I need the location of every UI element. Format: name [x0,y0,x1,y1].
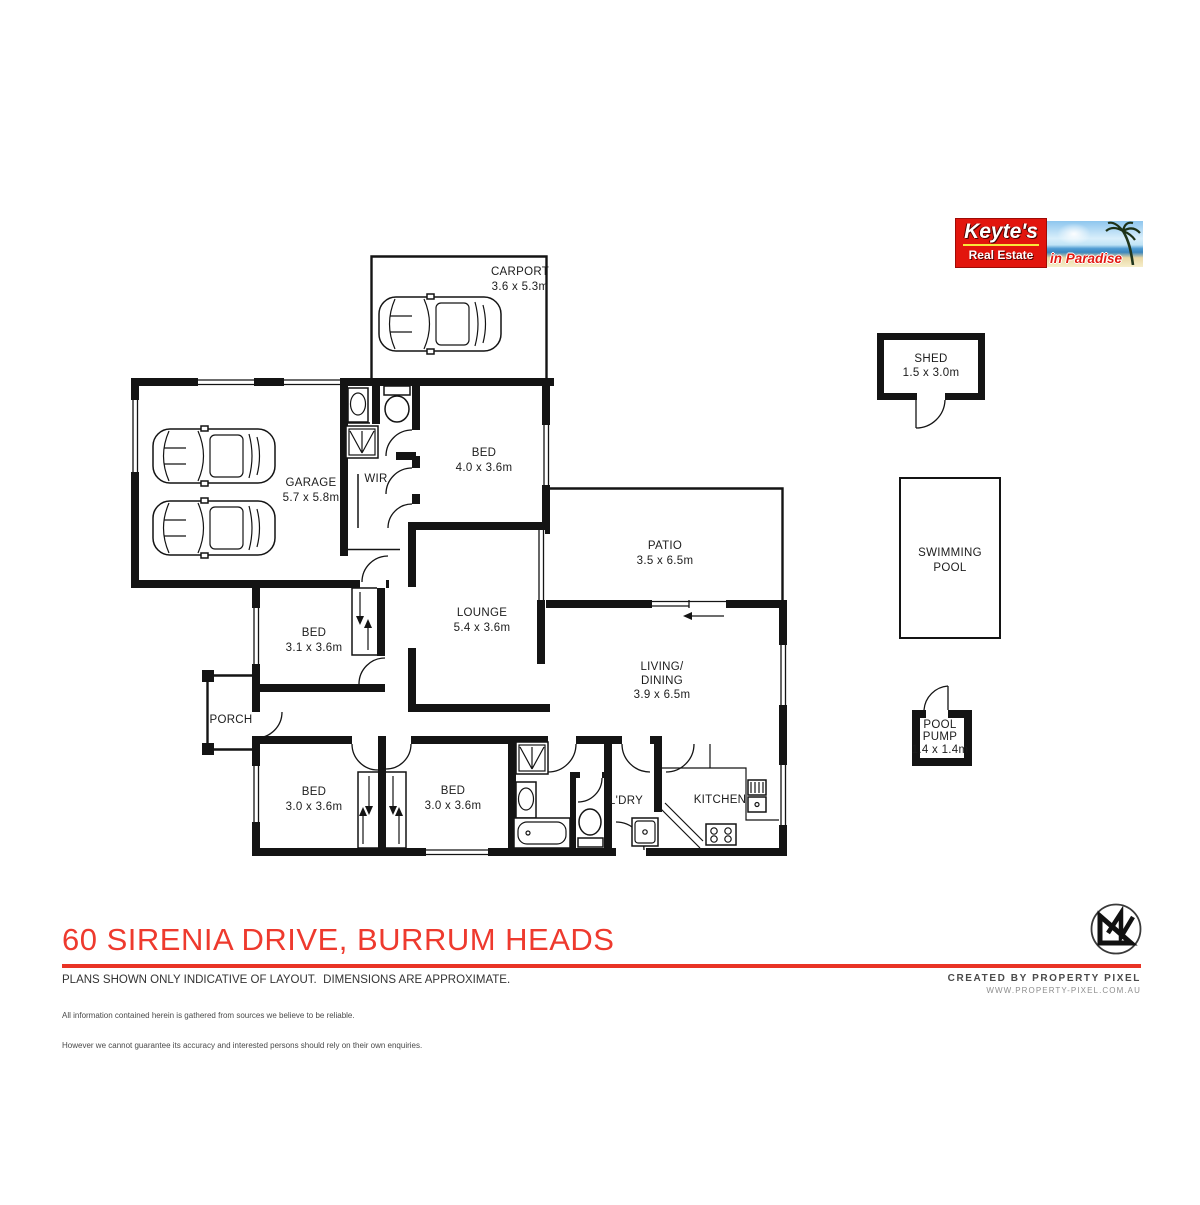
basin-icon [348,388,368,422]
laundry-tub-icon [632,818,658,846]
agency-logo-beach: in Paradise [1047,221,1143,267]
flyer-page: CARPORT 3.6 x 5.3m GARAGE 5.7 x 5.8m WIR… [0,0,1200,1200]
agency-brand-name: Keyte's [956,221,1046,243]
room-label-bed4: BED [441,785,466,797]
room-dims-living: 3.9 x 6.5m [634,689,691,701]
disclaimer-text: All information contained herein is gath… [62,991,422,1061]
divider-line [62,964,1141,968]
agency-logo: Keyte's Real Estate in Paradise [955,218,1143,268]
car-icon [153,498,275,558]
room-dims-bed2: 3.1 x 3.6m [286,642,343,654]
room-label-carport: CARPORT [491,266,549,278]
disclaimer-line-2: However we cannot guarantee its accuracy… [62,1041,422,1051]
doors [256,400,948,850]
disclaimer-line-1: All information contained herein is gath… [62,1011,422,1021]
room-label-pump-1: POOL [923,719,956,731]
room-dims-lounge: 5.4 x 3.6m [454,622,511,634]
room-label-garage: GARAGE [285,477,336,489]
bathtub-icon [514,818,570,848]
toilet-icon [384,386,410,422]
shower-icon [346,426,378,458]
room-label-patio: PATIO [648,540,682,552]
room-label-kitchen: KITCHEN [694,794,747,806]
agency-logo-left: Keyte's Real Estate [955,218,1047,268]
credit-creator: CREATED BY PROPERTY PIXEL [948,973,1141,984]
cooktop-icon [706,824,736,845]
shower-icon [516,742,548,774]
agency-underline [963,244,1039,246]
room-label-wir: WIR [364,473,387,485]
property-address: 60 SIRENIA DRIVE, BURRUM HEADS [62,922,614,958]
room-dims-bed3: 3.0 x 3.6m [286,801,343,813]
room-label-living-1: LIVING/ [640,661,684,673]
room-dims-pump: 1.4 x 1.4m [912,744,969,756]
room-label-pump-2: PUMP [923,731,957,743]
room-dims-shed: 1.5 x 3.0m [903,367,960,379]
room-label-living-2: DINING [641,675,683,687]
agency-tagline: in Paradise [1050,251,1122,266]
robes [344,474,406,848]
room-label-bed3: BED [302,786,327,798]
room-dims-bed4: 3.0 x 3.6m [425,800,482,812]
room-label-porch: PORCH [209,714,252,726]
kitchen-sink-icon [748,780,766,812]
room-label-pool-1: SWIMMING [918,547,982,559]
room-labels: CARPORT 3.6 x 5.3m GARAGE 5.7 x 5.8m WIR… [209,266,981,813]
room-label-pool-2: POOL [933,562,966,574]
car-icon [379,294,501,354]
credits: CREATED BY PROPERTY PIXEL WWW.PROPERTY-P… [948,973,1141,995]
room-dims-garage: 5.7 x 5.8m [283,492,340,504]
room-label-shed: SHED [914,353,947,365]
room-label-bed-master: BED [472,447,497,459]
room-dims-bed-master: 4.0 x 3.6m [456,462,513,474]
room-dims-patio: 3.5 x 6.5m [637,555,694,567]
sliding-door-arrow [683,612,724,620]
car-icon [153,426,275,486]
agency-subtitle: Real Estate [956,248,1046,262]
toilet-icon [578,809,603,847]
disclaimer-heading: PLANS SHOWN ONLY INDICATIVE OF LAYOUT. D… [62,974,510,986]
room-label-laundry: L'DRY [609,795,643,807]
room-label-lounge: LOUNGE [457,607,507,619]
credit-website: WWW.PROPERTY-PIXEL.COM.AU [948,986,1141,995]
room-label-bed2: BED [302,627,327,639]
sun-icon [1057,223,1091,245]
basin-icon [516,782,536,818]
porch-outline [202,670,252,755]
room-dims-carport: 3.6 x 5.3m [492,281,549,293]
property-pixel-logo [1089,902,1143,956]
